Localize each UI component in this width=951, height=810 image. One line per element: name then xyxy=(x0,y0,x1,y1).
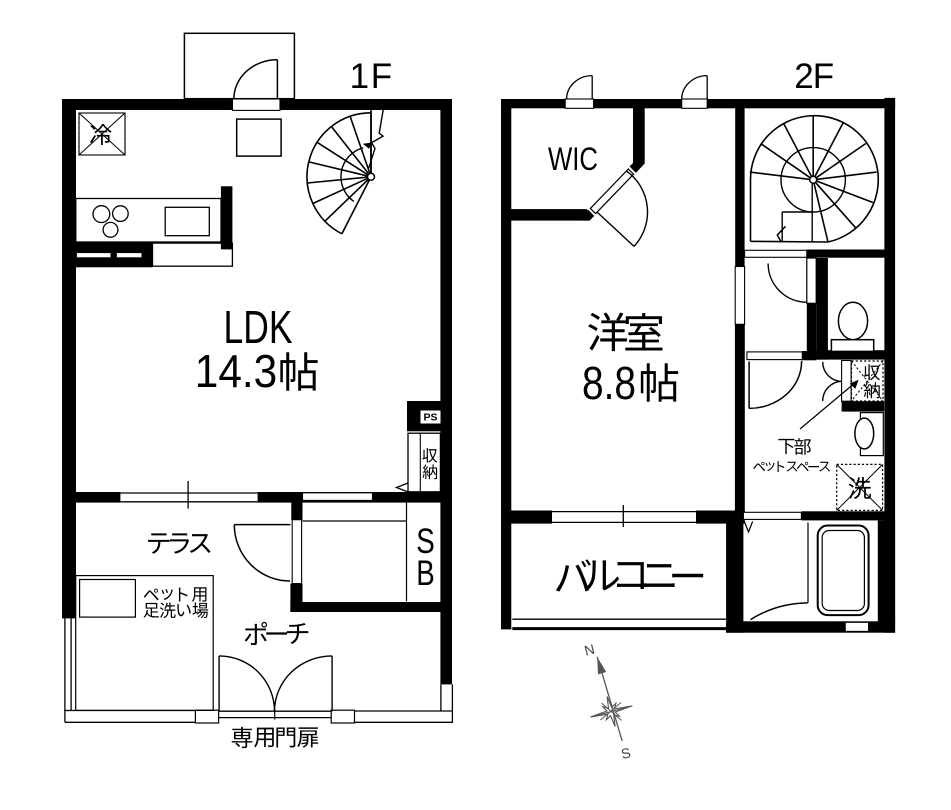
svg-text:B: B xyxy=(416,554,435,593)
svg-text:14.3: 14.3 xyxy=(195,345,278,397)
svg-text:WIC: WIC xyxy=(548,141,598,177)
svg-text:1: 1 xyxy=(350,57,369,96)
svg-text:8.8: 8.8 xyxy=(582,357,636,409)
svg-text:PS: PS xyxy=(424,412,438,424)
svg-text:F: F xyxy=(371,57,392,96)
svg-text:F: F xyxy=(813,57,834,96)
svg-text:2: 2 xyxy=(794,57,813,96)
